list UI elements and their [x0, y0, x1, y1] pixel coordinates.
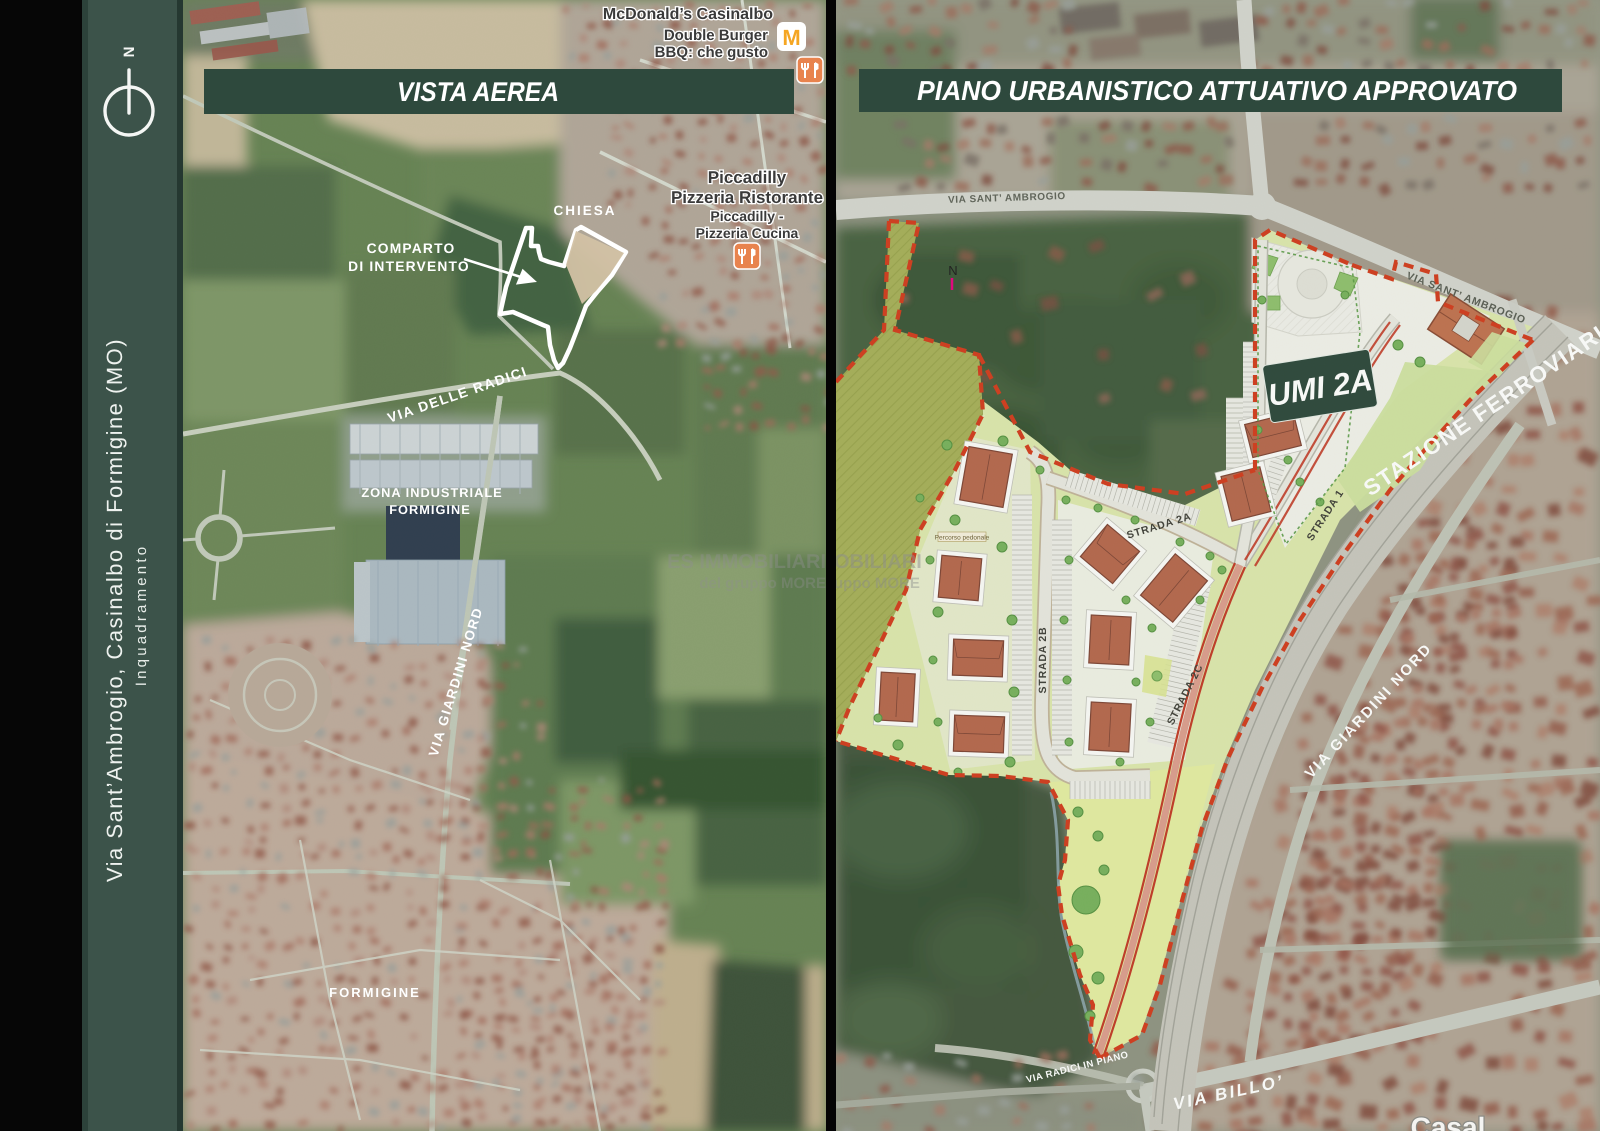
svg-text:del gruppo MORE: del gruppo MORE — [699, 575, 826, 592]
svg-text:FORMIGINE: FORMIGINE — [389, 502, 471, 517]
svg-text:BBQ: che gusto: BBQ: che gusto — [655, 44, 768, 61]
svg-text:Via Sant’Ambrogio, Casinalbo d: Via Sant’Ambrogio, Casinalbo di Formigin… — [102, 338, 127, 882]
svg-text:FORMIGINE: FORMIGINE — [329, 985, 421, 1000]
svg-text:PIANO URBANISTICO ATTUATIVO AP: PIANO URBANISTICO ATTUATIVO APPROVATO — [917, 75, 1517, 106]
svg-text:DI INTERVENTO: DI INTERVENTO — [348, 259, 470, 274]
svg-text:McDonald’s Casinalbo: McDonald’s Casinalbo — [603, 6, 773, 23]
svg-text:Inquadramento: Inquadramento — [133, 544, 150, 687]
svg-text:ZONA INDUSTRIALE: ZONA INDUSTRIALE — [361, 485, 502, 500]
svg-text:Pizzeria Cucina: Pizzeria Cucina — [696, 225, 799, 241]
svg-text:M: M — [782, 25, 800, 50]
svg-text:VISTA AEREA: VISTA AEREA — [397, 77, 559, 107]
svg-text:Pizzeria Ristorante: Pizzeria Ristorante — [671, 188, 823, 207]
svg-text:Double Burger: Double Burger — [664, 27, 768, 44]
svg-text:Piccadilly -: Piccadilly - — [710, 208, 783, 224]
svg-text:CHIESA: CHIESA — [553, 203, 616, 218]
svg-text:ES IMMOBILIARI: ES IMMOBILIARI — [667, 551, 826, 573]
svg-text:COMPARTO: COMPARTO — [367, 241, 456, 256]
svg-text:N: N — [121, 47, 138, 58]
svg-text:Piccadilly: Piccadilly — [708, 168, 787, 187]
